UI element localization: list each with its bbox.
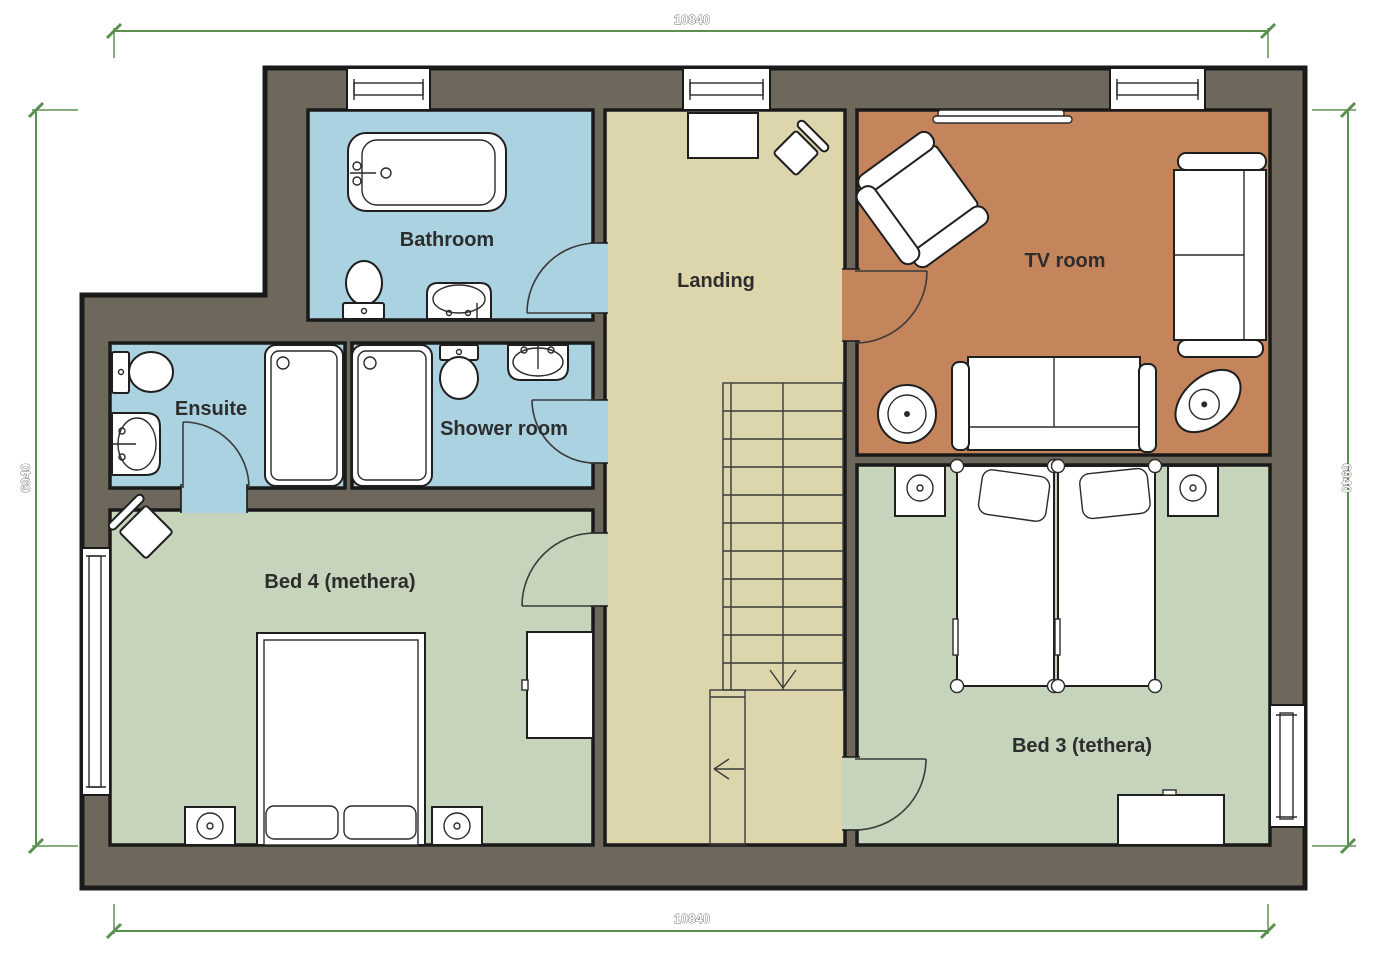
bed4-desk-icon <box>522 632 593 738</box>
shower-room-sink-icon <box>508 345 568 380</box>
dimension-right-value: 6940 <box>1339 464 1354 493</box>
bed4-label: Bed 4 (methera) <box>264 571 415 593</box>
tv-icon <box>933 110 1072 123</box>
dimension-left-value: 6940 <box>18 464 33 493</box>
bathroom-label: Bathroom <box>400 229 494 251</box>
ensuite-toilet-icon <box>112 352 173 393</box>
room-landing <box>605 110 845 845</box>
window-bathroom <box>347 68 430 110</box>
tv-room-label: TV room <box>1024 250 1105 272</box>
window-bed4 <box>82 548 110 795</box>
pillow <box>1079 468 1151 520</box>
landing-table <box>688 113 758 158</box>
bed3-speaker-left-icon <box>895 466 945 516</box>
dimension-bottom-value: 10840 <box>674 911 710 926</box>
floor-plan-canvas: Bathroom Ensuite Shower room Landing TV … <box>0 0 1385 960</box>
bed4-speaker-right-icon <box>432 807 482 845</box>
landing-label: Landing <box>677 270 755 292</box>
sofa-bottom-icon <box>952 357 1156 452</box>
window-bed3 <box>1270 705 1305 827</box>
shower-room-toilet-icon <box>440 345 478 399</box>
dimension-line-left <box>29 103 78 853</box>
shower-tray-icon <box>352 345 432 486</box>
bed3-label: Bed 3 (tethera) <box>1012 735 1152 757</box>
round-table-icon <box>878 385 936 443</box>
bed3-speaker-right-icon <box>1168 466 1218 516</box>
bathtub-icon <box>348 133 506 211</box>
double-bed-icon <box>257 633 425 845</box>
ensuite-shower-tray-icon <box>265 345 343 486</box>
bed3-desk-icon <box>1118 790 1224 845</box>
window-tv-room <box>1110 68 1205 110</box>
single-bed-left-icon <box>951 460 1061 693</box>
pillow <box>266 806 338 839</box>
single-bed-right-icon <box>1052 460 1162 693</box>
bed4-speaker-left-icon <box>185 807 235 845</box>
pillow <box>977 468 1051 522</box>
bathroom-sink-icon <box>427 283 491 319</box>
dimension-line-top <box>107 24 1275 58</box>
bathroom-toilet-icon <box>343 261 384 319</box>
floor-plan-page: Bathroom Ensuite Shower room Landing TV … <box>0 0 1385 960</box>
pillow <box>344 806 416 839</box>
sofa-right-icon <box>1174 153 1266 357</box>
ensuite-sink-icon <box>112 413 160 475</box>
dimension-top-value: 10840 <box>674 12 710 27</box>
ensuite-label: Ensuite <box>175 398 247 420</box>
window-landing <box>683 68 770 110</box>
shower-room-label: Shower room <box>440 418 568 440</box>
